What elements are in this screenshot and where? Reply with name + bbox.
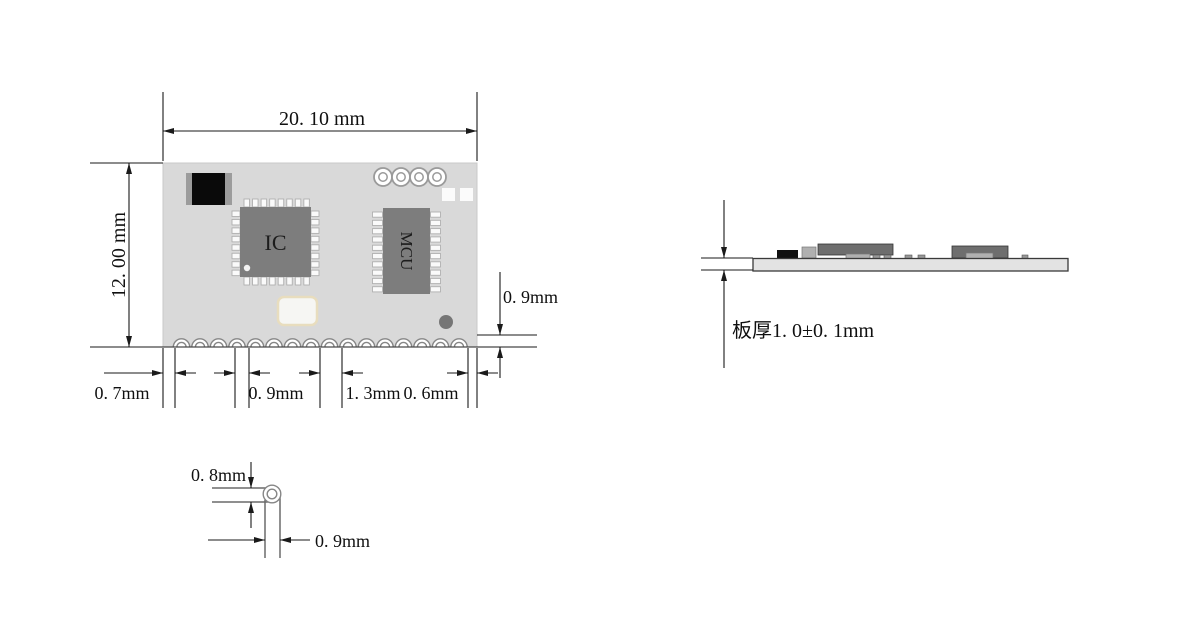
dimension-arrowhead bbox=[248, 477, 254, 488]
mcu-pin bbox=[373, 220, 383, 225]
mcu-pin bbox=[431, 229, 441, 234]
ic-pin bbox=[287, 199, 293, 207]
ic-pin bbox=[232, 211, 240, 217]
fiducial-square bbox=[442, 188, 455, 201]
dim-pitch-label: 1. 3mm bbox=[345, 383, 400, 403]
ic-pin bbox=[253, 199, 258, 207]
pad-detail-view bbox=[212, 485, 281, 558]
dim-hole-width-label: 0. 9mm bbox=[248, 383, 303, 403]
dimension-arrowhead bbox=[457, 370, 468, 376]
mcu-pin bbox=[373, 287, 383, 292]
ic-pin bbox=[304, 277, 310, 285]
mcu-pin bbox=[373, 237, 383, 242]
smd-component bbox=[186, 173, 232, 205]
fiducial-square bbox=[460, 188, 473, 201]
ic-pin bbox=[232, 262, 240, 268]
ic-pin bbox=[295, 199, 301, 207]
mcu-pin bbox=[373, 212, 383, 217]
dimension-arrowhead bbox=[342, 370, 353, 376]
dimension-arrowhead bbox=[280, 537, 291, 543]
smd-component-body bbox=[192, 173, 225, 205]
mcu-pin bbox=[431, 262, 441, 267]
dimension-arrowhead bbox=[126, 163, 132, 174]
crystal-component bbox=[278, 297, 317, 325]
ic-pin bbox=[311, 236, 319, 242]
ic-pin bbox=[311, 228, 319, 234]
dimension-arrowhead bbox=[254, 537, 265, 543]
ic-pin bbox=[311, 253, 319, 259]
dimension-arrowhead bbox=[466, 128, 477, 134]
dimension-arrowhead bbox=[163, 128, 174, 134]
pcb-dimension-drawing: IC MCU 20. 10 mm 12. 00 mm bbox=[0, 0, 1200, 624]
top-view: IC MCU bbox=[163, 163, 477, 355]
ic-pin bbox=[311, 219, 319, 225]
ic-pin bbox=[244, 199, 250, 207]
pad-corner-hole-inner bbox=[267, 489, 277, 499]
dim-hole-height-label: 0. 9mm bbox=[503, 287, 558, 307]
ic-pin bbox=[232, 228, 240, 234]
ic-pin bbox=[311, 270, 319, 276]
dimension-arrowhead bbox=[248, 502, 254, 513]
mcu-pin bbox=[373, 270, 383, 275]
dimension-arrowhead bbox=[721, 270, 727, 281]
mcu-pin bbox=[431, 270, 441, 275]
dimension-arrowhead bbox=[497, 347, 503, 358]
hole-ring-inner-icon bbox=[415, 173, 423, 181]
dim-pad-height-label: 0. 8mm bbox=[191, 465, 246, 485]
ic-pin bbox=[261, 199, 267, 207]
ic-pin bbox=[304, 199, 310, 207]
ic-pin bbox=[311, 262, 319, 268]
technical-drawing-svg: IC MCU 20. 10 mm 12. 00 mm bbox=[0, 0, 1200, 624]
hole-ring-inner-icon bbox=[433, 173, 441, 181]
mcu-pin bbox=[431, 237, 441, 242]
ic-pin bbox=[244, 277, 250, 285]
ic-pin bbox=[253, 277, 258, 285]
dim-right-margin-label: 0. 6mm bbox=[403, 383, 458, 403]
dimension-arrowhead bbox=[309, 370, 320, 376]
mcu-pin bbox=[373, 245, 383, 250]
mcu-pin bbox=[431, 245, 441, 250]
mcu-pin bbox=[431, 287, 441, 292]
ic-pin bbox=[232, 253, 240, 259]
ic-pin bbox=[311, 211, 319, 217]
mcu-pin bbox=[373, 254, 383, 259]
ic-pin bbox=[232, 219, 240, 225]
dimension-arrowhead bbox=[477, 370, 488, 376]
ic-pin bbox=[311, 245, 319, 251]
ic-label: IC bbox=[265, 230, 287, 255]
hole-ring-inner-icon bbox=[379, 173, 387, 181]
mcu-pin bbox=[431, 278, 441, 283]
side-component bbox=[802, 247, 816, 258]
hole-ring-inner-icon bbox=[397, 173, 405, 181]
ic-pin bbox=[270, 199, 276, 207]
dimension-arrowhead bbox=[497, 324, 503, 335]
ic-pin1-dot bbox=[244, 265, 250, 271]
dimension-arrowhead bbox=[175, 370, 186, 376]
mcu-pin bbox=[431, 220, 441, 225]
mcu-pin bbox=[373, 278, 383, 283]
ic-pin bbox=[261, 277, 267, 285]
ic-chip: IC bbox=[232, 199, 319, 285]
side-pcb-board bbox=[753, 259, 1068, 272]
side-view bbox=[753, 244, 1068, 271]
ic-pin bbox=[278, 199, 284, 207]
ic-pin bbox=[232, 270, 240, 276]
dimension-arrowhead bbox=[224, 370, 235, 376]
dimension-arrowhead bbox=[721, 247, 727, 258]
side-component bbox=[777, 250, 798, 258]
mcu-pin bbox=[431, 254, 441, 259]
ic-pin bbox=[232, 245, 240, 251]
dimension-arrowhead bbox=[126, 336, 132, 347]
ic-pin bbox=[287, 277, 293, 285]
dimension-arrowhead bbox=[249, 370, 260, 376]
ic-pin bbox=[232, 236, 240, 242]
dim-width-label: 20. 10 mm bbox=[279, 108, 366, 130]
mcu-pin bbox=[431, 212, 441, 217]
dim-pad-width-label: 0. 9mm bbox=[315, 531, 370, 551]
dim-board-thickness-label: 板厚1. 0±0. 1mm bbox=[732, 319, 875, 342]
dimension-arrowhead bbox=[152, 370, 163, 376]
ic-pin bbox=[270, 277, 276, 285]
ic-pin bbox=[295, 277, 301, 285]
mcu-label: MCU bbox=[397, 232, 416, 271]
dim-left-margin-label: 0. 7mm bbox=[94, 383, 149, 403]
mcu-pin bbox=[373, 262, 383, 267]
ic-pin bbox=[278, 277, 284, 285]
dim-height-label: 12. 00 mm bbox=[108, 212, 130, 299]
mcu-pin bbox=[373, 229, 383, 234]
via-test-point bbox=[439, 315, 453, 329]
side-component bbox=[818, 244, 893, 255]
